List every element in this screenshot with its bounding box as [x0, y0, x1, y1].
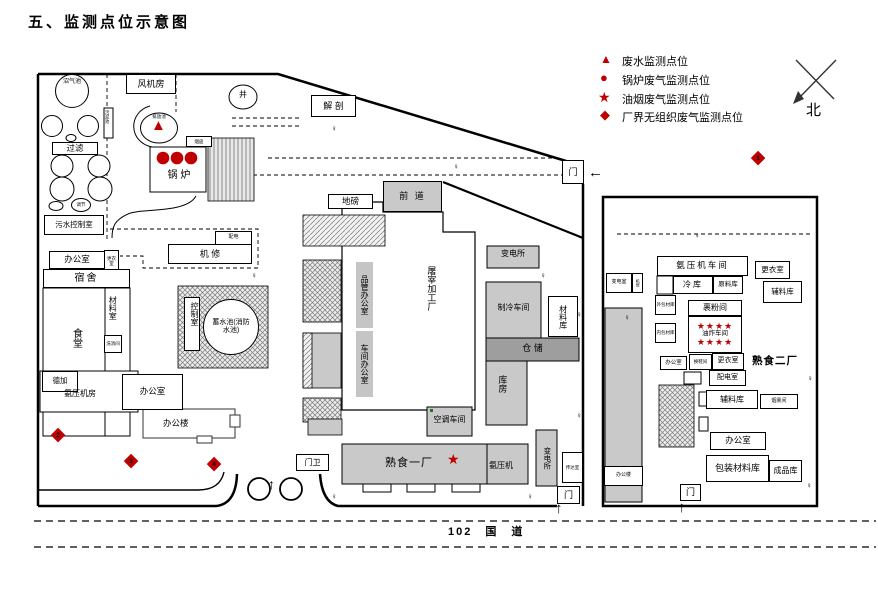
- repair-room-p2: 机修: [632, 273, 643, 293]
- wastewater-point-icon: ▲: [151, 117, 166, 134]
- office-b: 办公室: [122, 374, 183, 410]
- fan-room: 风机房: [126, 74, 176, 94]
- office-p2a: 办公室: [660, 356, 687, 370]
- road-label: 102 国 道: [448, 526, 524, 539]
- regulate-pool-label: 调节: [70, 202, 92, 207]
- office-p2b: 办公室: [710, 432, 766, 450]
- filter-room: 过滤: [52, 142, 98, 155]
- dissection-room: 解 剖: [311, 95, 356, 117]
- lamp-icon: ♀: [331, 492, 337, 501]
- substation-a-label: 变电所: [487, 249, 539, 258]
- boundary-point-4: ◆ 4: [204, 457, 224, 477]
- office-building-shape: [143, 409, 240, 443]
- office-a: 办公室: [49, 251, 105, 269]
- legend-boiler-label: 锅炉废气监测点位: [622, 75, 710, 88]
- lamp-icon: ♀: [576, 411, 582, 420]
- fume-point-icon: ★: [447, 451, 460, 467]
- legend-fume-label: 油烟废气监测点位: [622, 94, 710, 107]
- machine-repair: 机 修: [168, 244, 252, 264]
- aux-material-warehouse-b: 辅料库: [706, 390, 758, 409]
- sludge-pool-label: 污泥池: [105, 110, 110, 124]
- entrance-gate-posts: [248, 478, 302, 500]
- legend-boundary-icon: ◆: [600, 108, 610, 123]
- boiler-stack-point-icon: [185, 152, 198, 165]
- gate-arrow-up-p2: ↑: [678, 499, 686, 516]
- front-section: 前 道: [383, 181, 442, 212]
- storage-label: 仓 储: [486, 343, 579, 353]
- outer-pack-warehouse: 外包材库: [655, 295, 676, 315]
- legend-wastewater-label: 废水监测点位: [622, 56, 688, 69]
- page-title: 五、监测点位示意图: [28, 14, 190, 31]
- material-warehouse: 材料库: [548, 296, 578, 337]
- biogas-pool-label: 沼气池: [54, 79, 90, 86]
- ammonia-workshop-p2: 氨压机车间: [657, 256, 748, 276]
- canteen-label: 食堂: [70, 328, 82, 348]
- lamp-icon: ♀: [807, 374, 813, 383]
- legend-boundary-label: 厂界无组织废气监测点位: [622, 112, 743, 125]
- refrigeration-label: 制冷车间: [486, 303, 541, 312]
- inner-pack-warehouse: 内包材库: [655, 323, 676, 343]
- water-pool-label: 蓄水池(消防水池): [209, 306, 253, 348]
- sewage-control-room: 污水控制室: [44, 215, 104, 235]
- compass-north-label: 北: [806, 102, 821, 119]
- legend-fume-icon: ★: [598, 89, 611, 105]
- material-room-label: 材料室: [108, 296, 117, 320]
- workshop-office: 车间办公室: [356, 331, 373, 397]
- slaughter-plant-label: 屠宰加工厂: [426, 266, 436, 338]
- control-room-label: 控制室: [184, 297, 200, 351]
- duty-room: 传达室: [562, 452, 583, 483]
- ammonia-comp-label: 氨压机: [489, 461, 513, 470]
- lamp-icon: ♀: [331, 124, 337, 133]
- changing-room-p2b: 更衣室: [712, 353, 744, 370]
- dormitory: 宿舍: [43, 269, 130, 288]
- boiler-stack-point-icon: [171, 152, 184, 165]
- lamp-icon: ♀: [694, 231, 700, 240]
- lamp-icon: ♀: [527, 492, 533, 501]
- chimney-label: 烟囱: [186, 136, 212, 147]
- boiler-label: 锅 炉: [158, 165, 200, 187]
- transformer-room-p2: 变电室: [606, 273, 632, 293]
- office-small-p2: 办公楼: [604, 466, 643, 486]
- boundary-point-3: ◆ 3: [121, 454, 141, 474]
- lamp-icon: ♀: [453, 162, 459, 171]
- cooked-food-1-label: 熟食一厂: [385, 457, 433, 470]
- north-arrow-icon: [793, 60, 836, 104]
- shoe-room: 换鞋间: [689, 354, 712, 370]
- lamp-icon: ♀: [806, 481, 812, 490]
- office-building-label: 办公楼: [163, 419, 189, 429]
- lamp-icon: ♀: [540, 271, 546, 280]
- ammonia-room-label: 氨压机房: [64, 389, 96, 398]
- plant2-name: 熟食二厂: [752, 355, 798, 367]
- boiler-stack-point-icon: [157, 152, 170, 165]
- fume-points-row2-icon: ★★★★: [697, 338, 733, 347]
- lamp-icon: ♀: [251, 271, 257, 280]
- packing-material-warehouse: 包装材料库: [706, 455, 769, 482]
- qc-office: 品管办公室: [356, 262, 373, 328]
- lamp-icon: ♀: [576, 310, 582, 319]
- boundary-point-2: ◆ 2: [48, 428, 68, 448]
- finished-warehouse: 成品库: [769, 460, 802, 482]
- cold-storage: 冷库: [673, 276, 713, 294]
- gate-guard: 门卫: [296, 454, 329, 471]
- hatched-shed: [208, 138, 254, 201]
- ac-workshop-label: 空调车间: [427, 415, 472, 424]
- power-dist: 配电: [215, 231, 252, 245]
- weighbridge: 地磅: [328, 194, 373, 209]
- frying-workshop: ★★★★ 油炸车间 ★★★★: [688, 316, 742, 353]
- raw-material-warehouse: 原料库: [713, 276, 743, 294]
- site-map-page: 五、监测点位示意图 ▲ 废水监测点位 ● 锅炉废气监测点位 ★ 油烟废气监测点位…: [0, 0, 878, 605]
- gate-northeast: 门: [562, 160, 584, 184]
- entrance-arrow-up: ↑: [268, 476, 275, 492]
- wash-room: 洗消间: [104, 335, 122, 353]
- legend-boiler-icon: ●: [600, 71, 608, 86]
- substation-b-label: 变电所: [538, 434, 555, 482]
- gate-arrow-left: ←: [588, 164, 603, 181]
- warehouse-label: 库房: [497, 375, 507, 393]
- well-label: 井: [236, 90, 250, 99]
- legend-wastewater-icon: ▲: [600, 53, 612, 67]
- gate-arrow-up-p1: ↑: [555, 500, 563, 517]
- boundary-point-1: ◆ 1: [748, 151, 768, 171]
- flour-room: 裹粉间: [688, 300, 742, 316]
- lamp-icon: ♀: [624, 313, 630, 322]
- power-room-p2: 配电室: [709, 370, 746, 386]
- smoke-room: 烟熏间: [760, 394, 798, 409]
- aux-material-warehouse-a: 辅料库: [763, 281, 802, 303]
- changing-room-p2a: 更衣室: [755, 261, 790, 279]
